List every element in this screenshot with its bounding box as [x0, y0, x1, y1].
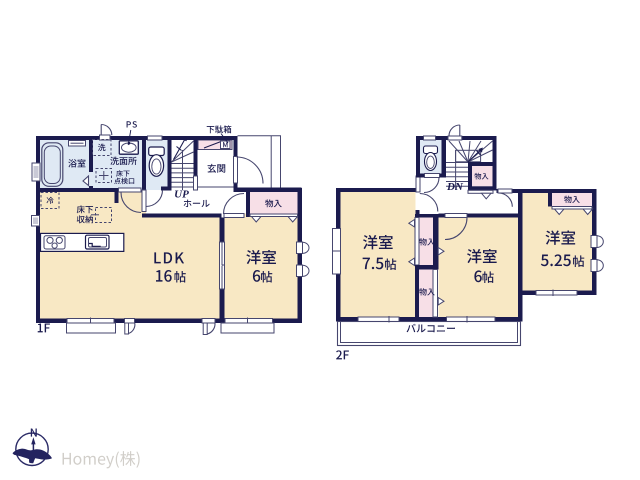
svg-text:DN: DN: [446, 181, 464, 193]
svg-text:UP: UP: [174, 189, 189, 201]
